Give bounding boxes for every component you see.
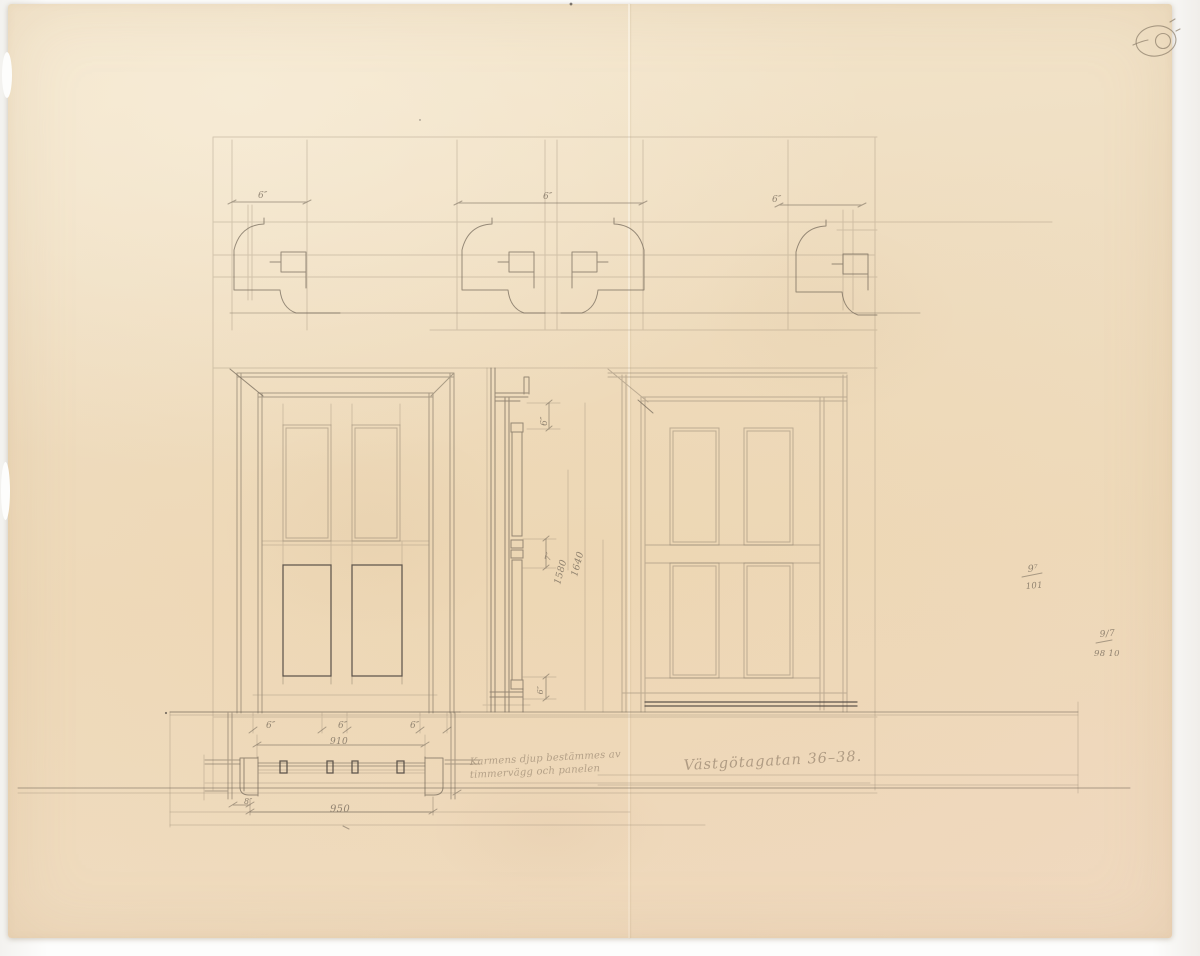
dim-section-top: 6″: [540, 416, 550, 426]
dim-under-door-1: 6″: [266, 721, 276, 731]
right-door-threshold: [645, 702, 857, 706]
guide-lines: [170, 137, 1078, 827]
dim-section-bottom: 6″: [536, 686, 545, 695]
section-dimension-lines: [543, 400, 552, 701]
moulding-profiles: [228, 200, 877, 315]
dim-profile-middle: 6″: [543, 192, 553, 202]
reference-marks: 9⁷ 101 9/7 98 10: [1022, 563, 1120, 659]
ref-lower-number: 98 10: [1094, 649, 1120, 659]
ref-lower-value: 9/7: [1099, 629, 1115, 640]
dust-specks: [165, 3, 572, 715]
stamp-mark: [1133, 19, 1180, 59]
dim-under-door-2: 6″: [338, 721, 348, 731]
left-door-lower-panels: [283, 565, 402, 676]
drawing-canvas: 6″ 6″ 6″ 6″ 6″ 6″ 910 950 8″ 6″ 7″ 1580 …: [0, 0, 1200, 956]
dim-height-inner: 1580: [552, 558, 569, 585]
plan-right-jamb: [425, 757, 443, 796]
ref-upper-number: 101: [1025, 581, 1043, 592]
dim-height-outer: 1640: [569, 550, 586, 577]
dim-under-door-3: 6″: [410, 721, 420, 731]
handwritten-annotations: Västgötagatan 36–38. Karmens djup bestäm…: [469, 749, 863, 781]
left-door-elevation: [230, 369, 454, 713]
dimension-labels: 6″ 6″ 6″ 6″ 6″ 6″ 910 950 8″ 6″ 7″ 1580 …: [244, 191, 782, 815]
door-leaf-edge: [511, 423, 523, 689]
dim-section-small: 7″: [543, 551, 554, 562]
dim-plan-outer: 950: [330, 804, 350, 815]
right-door-elevation: [608, 369, 857, 712]
dim-plan-offset: 8″: [244, 797, 253, 806]
dim-plan-inner: 910: [330, 737, 348, 747]
street-label: Västgötagatan 36–38.: [683, 749, 862, 774]
plan-leaf-lines: [258, 763, 425, 766]
right-door-panels: [670, 428, 793, 678]
dim-profile-right: 6″: [772, 195, 782, 205]
plan-left-jamb: [240, 757, 258, 796]
ref-upper-value: 9⁷: [1027, 563, 1038, 575]
left-door-upper-panels: [283, 425, 402, 684]
dim-profile-left: 6″: [258, 191, 268, 201]
